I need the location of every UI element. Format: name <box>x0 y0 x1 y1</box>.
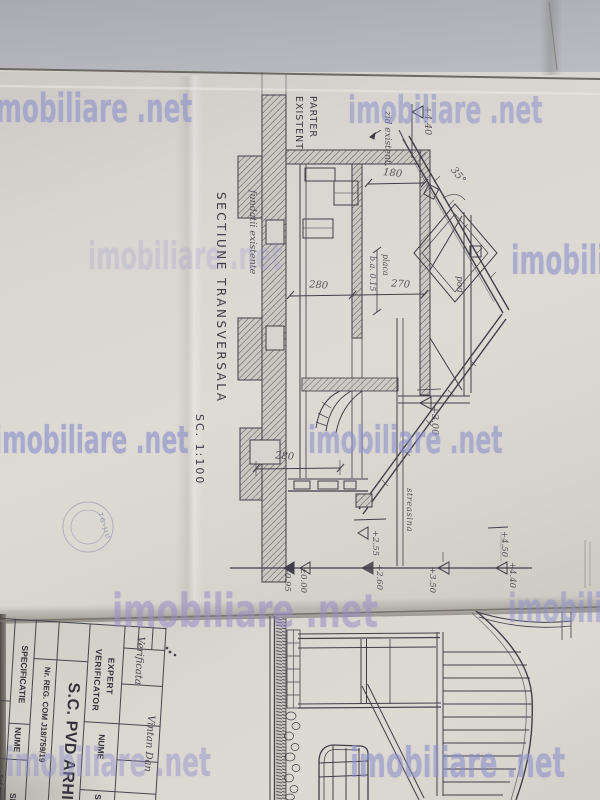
titleblock-expert: EXPERT <box>104 657 116 695</box>
watermark-imobiliare: imobiliare .net <box>350 738 565 787</box>
label-parter: PARTER <box>307 96 318 138</box>
level-plus440b: +4.40 <box>507 562 517 588</box>
watermark-imobiliare: imobiliare .net <box>511 238 600 284</box>
signature-handwritten: Verificata <box>132 636 146 685</box>
titleblock-line <box>80 789 157 795</box>
watermark-imobiliare: imobiliare .net <box>88 234 283 278</box>
dim-270: 270 <box>391 278 411 290</box>
label-streasina: streasina <box>404 488 414 532</box>
titleblock-line <box>0 700 10 702</box>
level-plus450: +4.50 <box>499 531 509 557</box>
watermark-imobiliare: imobiliare .net <box>508 586 600 632</box>
titleblock-specificatie: SPECIFICATIE <box>17 645 31 703</box>
label-existent: EXISTENT <box>293 96 304 150</box>
watermark-imobiliare: mobiliare .net <box>0 86 192 132</box>
label-placa-dim: b.a. 0.15 <box>368 256 377 291</box>
drawing-title: SECTIUNE TRANSVERSALA <box>214 192 228 403</box>
label-placa: placa <box>381 254 390 276</box>
photo-architectural-drawing: PARTER EXISTENT zid existent. +4.40 180 … <box>0 0 600 800</box>
titleblock-semnatura: SEMNAT. <box>91 794 103 800</box>
label-pod: pod <box>454 276 464 293</box>
watermark-imobiliare: imobiliare .net <box>308 418 503 462</box>
titleblock-line <box>8 723 29 725</box>
titleblock-verificator: VERIFICATOR <box>90 649 104 712</box>
level-plus255: +2.55 <box>370 530 380 556</box>
watermark-imobiliare: imobiliare .net <box>112 584 378 638</box>
watermark-imobiliare: imobiliare .net <box>348 88 543 132</box>
titleblock-line <box>33 658 87 662</box>
watermark-imobiliare: imobiliare .net <box>0 418 189 462</box>
titleblock-sef-proiect: Sef proiect <box>0 774 3 800</box>
level-plus350: +3.50 <box>427 567 437 593</box>
drawing-scale: SC. 1:100 <box>193 414 206 485</box>
watermark-imobiliare: imobiliare .net <box>6 740 211 786</box>
dim-280: 280 <box>309 279 329 291</box>
dim-180: 180 <box>382 167 402 180</box>
dim-280b: 280 <box>275 450 295 462</box>
titleblock-semnatura2: SE <box>8 793 19 800</box>
